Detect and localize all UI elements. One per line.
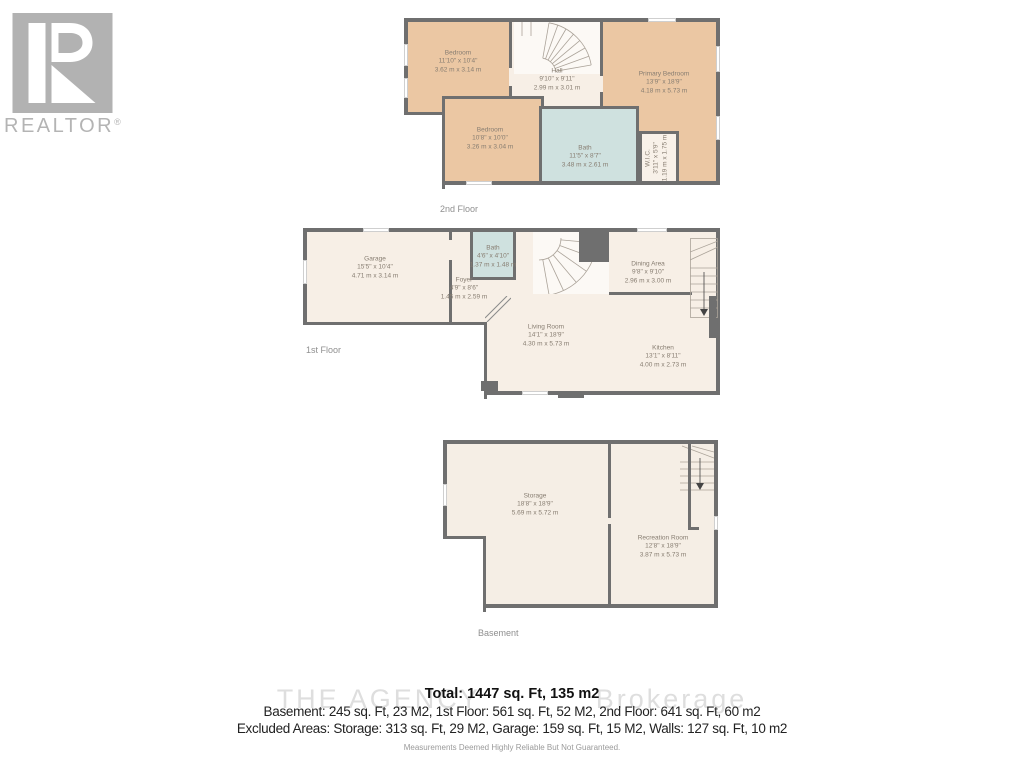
room-name: Hall: [534, 67, 581, 75]
room-dims-imperial: 3'11" x 5'9": [653, 135, 661, 182]
room-name: Garage: [352, 255, 399, 263]
door-gap: [600, 76, 603, 92]
realtor-wordmark: REALTOR®: [4, 115, 121, 138]
curved-stairs-icon: [514, 22, 600, 74]
door-gap: [449, 240, 452, 260]
room-name: Storage: [512, 492, 559, 500]
window-marker: [466, 181, 492, 185]
outside-notch: [303, 322, 487, 399]
room-label-bath-1f: Bath 4'6" x 4'10" 1.37 m x 1.48 m: [470, 244, 517, 269]
wall-segment: [608, 524, 611, 604]
room-dims-imperial: 11'5" x 8'7": [562, 153, 609, 161]
floor-label-first: 1st Floor: [306, 345, 341, 355]
wall-segment: [609, 292, 692, 295]
room-label-kitchen: Kitchen 13'1" x 8'11" 4.00 m x 2.73 m: [640, 344, 687, 369]
room-name: W.I.C.: [644, 135, 652, 182]
realtor-wordmark-text: REALTOR: [4, 115, 114, 137]
room-label-dining-area: Dining Area 9'8" x 9'10" 2.96 m x 3.00 m: [625, 260, 672, 285]
room-dims-imperial: 4'6" x 4'10": [470, 253, 517, 261]
room-dims-imperial: 4'9" x 8'6": [441, 285, 488, 293]
window-marker: [404, 78, 408, 98]
window-marker: [714, 516, 718, 530]
stair-rail-wall: [688, 444, 691, 530]
room-dims-metric: 3.26 m x 3.04 m: [467, 143, 514, 151]
window-marker: [637, 228, 667, 232]
realtor-r-icon: [10, 13, 115, 113]
room-name: Primary Bedroom: [639, 70, 690, 78]
room-label-bedroom-2: Bedroom 10'8" x 10'0" 3.26 m x 3.04 m: [467, 126, 514, 151]
plan-first-floor: Garage 15'5" x 10'4" 4.71 m x 3.14 m Bat…: [303, 228, 720, 395]
disclaimer-text: Measurements Deemed Highly Reliable But …: [0, 743, 1024, 752]
stair-rail-wall: [688, 527, 699, 530]
registered-mark: ®: [114, 117, 121, 127]
floorplan-page: REALTOR®: [0, 0, 1024, 768]
room-dims-metric: 4.30 m x 5.73 m: [523, 340, 570, 348]
door-swing-icon: [485, 296, 511, 322]
room-dims-metric: 4.18 m x 5.73 m: [639, 87, 690, 95]
fireplace-block: [481, 381, 498, 391]
room-dims-imperial: 12'8" x 18'9": [638, 543, 689, 551]
outside-notch: [443, 536, 486, 612]
room-name: Recreation Room: [638, 534, 689, 542]
window-marker: [716, 116, 720, 140]
room-dims-imperial: 10'8" x 10'0": [467, 135, 514, 143]
room-label-bedroom-1: Bedroom 11'10" x 10'4" 3.62 m x 3.14 m: [435, 49, 482, 74]
room-dims-metric: 1.19 m x 1.75 m: [661, 135, 669, 182]
room-dims-imperial: 18'8" x 18'9": [512, 501, 559, 509]
room-name: Dining Area: [625, 260, 672, 268]
room-dims-imperial: 13'1" x 8'11": [640, 353, 687, 361]
window-marker: [716, 46, 720, 72]
plan-basement: Storage 18'8" x 18'9" 5.69 m x 5.72 m Re…: [443, 440, 718, 608]
room-label-foyer: Foyer 4'9" x 8'6" 1.45 m x 2.59 m: [441, 276, 488, 301]
total-area-text: Total: 1447 sq. Ft, 135 m2: [0, 686, 1024, 702]
window-marker: [303, 260, 307, 284]
room-dims-imperial: 9'8" x 9'10": [625, 269, 672, 277]
room-dims-metric: 3.87 m x 5.73 m: [638, 551, 689, 559]
room-label-garage: Garage 15'5" x 10'4" 4.71 m x 3.14 m: [352, 255, 399, 280]
floor-label-second: 2nd Floor: [440, 204, 478, 214]
room-dims-imperial: 15'5" x 10'4": [352, 264, 399, 272]
room-name: Bath: [562, 144, 609, 152]
room-dims-imperial: 9'10" x 9'11": [534, 76, 581, 84]
room-label-storage: Storage 18'8" x 18'9" 5.69 m x 5.72 m: [512, 492, 559, 517]
room-label-hall: Hall 9'10" x 9'11" 2.99 m x 3.01 m: [534, 67, 581, 92]
window-marker: [648, 18, 676, 22]
floor-areas-text: Basement: 245 sq. Ft, 23 M2, 1st Floor: …: [0, 704, 1024, 719]
room-label-living-room: Living Room 14'1" x 18'9" 4.30 m x 5.73 …: [523, 323, 570, 348]
room-dims-metric: 1.45 m x 2.59 m: [441, 293, 488, 301]
plan-second-floor: Bedroom 11'10" x 10'4" 3.62 m x 3.14 m B…: [404, 18, 720, 185]
room-dims-metric: 2.99 m x 3.01 m: [534, 84, 581, 92]
basement-stairs-icon: [680, 444, 714, 492]
room-name: Living Room: [523, 323, 570, 331]
room-dims-metric: 2.96 m x 3.00 m: [625, 277, 672, 285]
wall-segment: [709, 296, 716, 338]
room-label-recreation-room: Recreation Room 12'8" x 18'9" 3.87 m x 5…: [638, 534, 689, 559]
room-name: Foyer: [441, 276, 488, 284]
room-name: Bedroom: [467, 126, 514, 134]
room-dims-imperial: 11'10" x 10'4": [435, 58, 482, 66]
room-dims-imperial: 13'9" x 18'9": [639, 79, 690, 87]
room-dims-metric: 3.48 m x 2.61 m: [562, 161, 609, 169]
window-marker: [443, 484, 447, 506]
wall-segment: [608, 444, 611, 518]
room-label-bath-2f: Bath 11'5" x 8'7" 3.48 m x 2.61 m: [562, 144, 609, 169]
excluded-areas-text: Excluded Areas: Storage: 313 sq. Ft, 29 …: [0, 721, 1024, 736]
realtor-logo: REALTOR®: [10, 13, 130, 118]
room-name: Kitchen: [640, 344, 687, 352]
room-dims-metric: 1.37 m x 1.48 m: [470, 261, 517, 269]
floor-label-basement: Basement: [478, 628, 519, 638]
porch-step: [558, 391, 584, 398]
window-marker: [363, 228, 389, 232]
room-dims-metric: 4.00 m x 2.73 m: [640, 361, 687, 369]
room-label-primary-bedroom: Primary Bedroom 13'9" x 18'9" 4.18 m x 5…: [639, 70, 690, 95]
door-gap: [509, 68, 512, 86]
wall-segment: [579, 232, 609, 262]
room-dims-metric: 3.62 m x 3.14 m: [435, 66, 482, 74]
room-name: Bedroom: [435, 49, 482, 57]
window-marker: [522, 391, 548, 395]
outside-notch: [404, 112, 445, 189]
room-dims-metric: 4.71 m x 3.14 m: [352, 272, 399, 280]
room-name: Bath: [470, 244, 517, 252]
window-marker: [404, 44, 408, 66]
room-label-wic: W.I.C. 3'11" x 5'9" 1.19 m x 1.75 m: [644, 135, 669, 182]
room-dims-metric: 5.69 m x 5.72 m: [512, 509, 559, 517]
room-dims-imperial: 14'1" x 18'9": [523, 332, 570, 340]
